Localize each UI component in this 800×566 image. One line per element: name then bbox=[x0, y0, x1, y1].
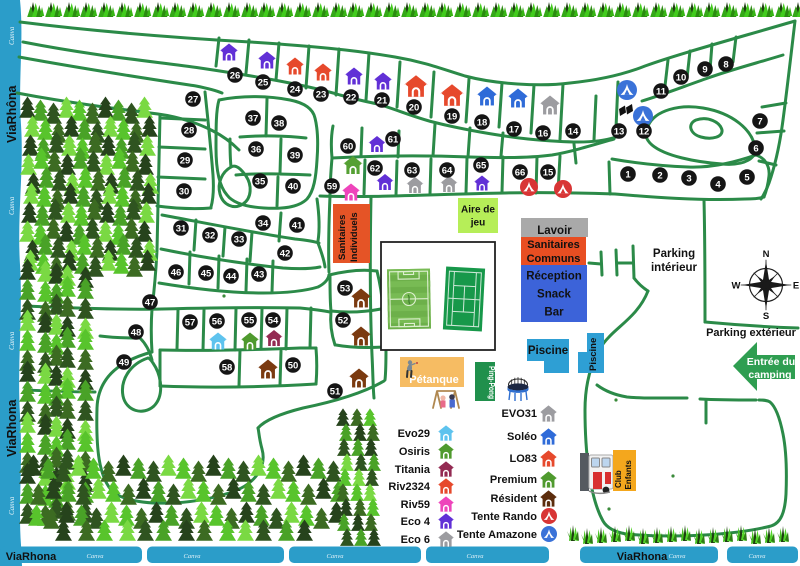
svg-text:52: 52 bbox=[338, 315, 349, 326]
svg-text:S: S bbox=[763, 311, 769, 322]
svg-text:14: 14 bbox=[568, 126, 579, 137]
svg-text:Canva: Canva bbox=[8, 496, 16, 515]
svg-text:7: 7 bbox=[757, 116, 762, 127]
svg-text:48: 48 bbox=[131, 327, 142, 338]
svg-text:2: 2 bbox=[657, 170, 662, 181]
svg-text:Canva: Canva bbox=[8, 26, 16, 45]
svg-text:43: 43 bbox=[254, 269, 265, 280]
svg-text:22: 22 bbox=[346, 92, 357, 103]
svg-text:Aire de: Aire de bbox=[461, 204, 495, 215]
svg-text:12: 12 bbox=[639, 126, 650, 137]
svg-text:Canva: Canva bbox=[8, 331, 16, 350]
svg-text:EVO31: EVO31 bbox=[502, 408, 537, 420]
svg-text:ViaRhona: ViaRhona bbox=[617, 551, 668, 563]
svg-text:3: 3 bbox=[686, 173, 691, 184]
svg-text:65: 65 bbox=[476, 160, 487, 171]
svg-text:Parking: Parking bbox=[653, 248, 695, 260]
svg-text:Tente Amazone: Tente Amazone bbox=[457, 529, 537, 541]
svg-text:E: E bbox=[793, 281, 799, 292]
svg-text:intérieur: intérieur bbox=[651, 262, 698, 274]
svg-text:Bar: Bar bbox=[544, 307, 564, 319]
svg-text:39: 39 bbox=[290, 150, 301, 161]
svg-text:Titania: Titania bbox=[395, 464, 431, 476]
svg-text:54: 54 bbox=[268, 315, 279, 326]
svg-text:35: 35 bbox=[255, 176, 266, 187]
svg-text:38: 38 bbox=[274, 118, 285, 129]
svg-text:LO83: LO83 bbox=[509, 453, 537, 465]
svg-text:57: 57 bbox=[185, 317, 196, 328]
svg-text:20: 20 bbox=[409, 102, 420, 113]
svg-text:Ping-Pong: Ping-Pong bbox=[487, 366, 496, 399]
svg-text:21: 21 bbox=[377, 95, 388, 106]
svg-text:6: 6 bbox=[753, 143, 758, 154]
svg-text:10: 10 bbox=[676, 72, 687, 83]
svg-text:63: 63 bbox=[407, 165, 418, 176]
svg-text:19: 19 bbox=[447, 111, 458, 122]
svg-text:Osiris: Osiris bbox=[399, 446, 430, 458]
svg-text:56: 56 bbox=[212, 316, 223, 327]
svg-text:55: 55 bbox=[244, 315, 255, 326]
svg-text:Soléo: Soléo bbox=[507, 431, 537, 443]
svg-text:23: 23 bbox=[316, 89, 327, 100]
svg-text:Club: Club bbox=[614, 470, 623, 488]
svg-text:40: 40 bbox=[288, 181, 299, 192]
svg-text:Tente Rando: Tente Rando bbox=[471, 511, 537, 523]
svg-text:Piscine: Piscine bbox=[588, 338, 599, 371]
svg-text:Canva: Canva bbox=[669, 553, 686, 560]
svg-text:Canva: Canva bbox=[184, 553, 201, 560]
svg-text:62: 62 bbox=[370, 163, 381, 174]
svg-text:4: 4 bbox=[715, 179, 721, 190]
svg-text:44: 44 bbox=[226, 271, 237, 282]
svg-text:29: 29 bbox=[180, 155, 191, 166]
svg-text:50: 50 bbox=[288, 360, 299, 371]
svg-text:1: 1 bbox=[625, 169, 631, 180]
svg-text:N: N bbox=[763, 249, 770, 260]
svg-text:Réception: Réception bbox=[526, 271, 582, 283]
svg-text:33: 33 bbox=[234, 234, 245, 245]
svg-text:24: 24 bbox=[290, 84, 301, 95]
svg-text:42: 42 bbox=[280, 248, 291, 259]
svg-text:Sanitaires: Sanitaires bbox=[527, 239, 580, 251]
svg-text:Canva: Canva bbox=[327, 553, 344, 560]
svg-text:Parking extérieur: Parking extérieur bbox=[706, 327, 797, 339]
svg-text:59: 59 bbox=[327, 181, 338, 192]
svg-text:27: 27 bbox=[188, 94, 199, 105]
svg-text:11: 11 bbox=[656, 86, 667, 97]
svg-text:Canva: Canva bbox=[8, 196, 16, 215]
svg-text:ViaRhona: ViaRhona bbox=[5, 399, 19, 457]
svg-text:Sanitaires: Sanitaires bbox=[337, 215, 348, 260]
svg-text:61: 61 bbox=[388, 134, 399, 145]
svg-text:46: 46 bbox=[171, 267, 182, 278]
svg-text:41: 41 bbox=[292, 220, 303, 231]
svg-text:16: 16 bbox=[538, 128, 549, 139]
svg-text:Canva: Canva bbox=[87, 553, 104, 560]
svg-text:17: 17 bbox=[509, 124, 520, 135]
svg-text:30: 30 bbox=[179, 186, 190, 197]
svg-text:Résident: Résident bbox=[491, 493, 538, 505]
svg-text:49: 49 bbox=[119, 357, 130, 368]
svg-text:Individuels: Individuels bbox=[349, 212, 360, 262]
svg-text:Canva: Canva bbox=[467, 553, 484, 560]
svg-text:60: 60 bbox=[343, 141, 354, 152]
svg-text:36: 36 bbox=[251, 144, 262, 155]
svg-text:5: 5 bbox=[744, 172, 750, 183]
svg-text:Eco 4: Eco 4 bbox=[401, 516, 431, 528]
svg-text:32: 32 bbox=[205, 230, 216, 241]
svg-text:47: 47 bbox=[145, 297, 156, 308]
svg-text:37: 37 bbox=[248, 113, 259, 124]
svg-text:Evo29: Evo29 bbox=[398, 428, 430, 440]
svg-text:Lavoir: Lavoir bbox=[537, 225, 572, 237]
svg-text:31: 31 bbox=[176, 223, 187, 234]
svg-text:ViaRhôna: ViaRhôna bbox=[5, 85, 19, 143]
svg-text:ViaRhona: ViaRhona bbox=[6, 551, 57, 563]
svg-text:Snack: Snack bbox=[537, 289, 571, 301]
svg-text:Entrée du: Entrée du bbox=[747, 356, 795, 368]
svg-text:8: 8 bbox=[723, 59, 728, 70]
svg-text:Riv2324: Riv2324 bbox=[388, 481, 430, 493]
svg-text:45: 45 bbox=[201, 268, 212, 279]
svg-text:W: W bbox=[732, 281, 741, 292]
svg-text:26: 26 bbox=[230, 70, 241, 81]
svg-text:53: 53 bbox=[340, 283, 351, 294]
svg-text:Riv59: Riv59 bbox=[401, 499, 430, 511]
svg-text:jeu: jeu bbox=[470, 218, 485, 229]
svg-text:Eco 6: Eco 6 bbox=[401, 534, 430, 546]
svg-text:camping: camping bbox=[748, 369, 791, 381]
svg-text:Piscine: Piscine bbox=[528, 345, 568, 357]
svg-text:Communs: Communs bbox=[527, 253, 581, 265]
svg-text:64: 64 bbox=[442, 165, 453, 176]
svg-text:51: 51 bbox=[330, 386, 341, 397]
svg-text:13: 13 bbox=[614, 126, 625, 137]
svg-text:28: 28 bbox=[184, 125, 195, 136]
svg-text:Premium: Premium bbox=[490, 474, 537, 486]
svg-text:Enfants: Enfants bbox=[624, 460, 633, 490]
svg-text:Pétanque: Pétanque bbox=[409, 374, 459, 386]
svg-text:15: 15 bbox=[543, 167, 554, 178]
svg-text:66: 66 bbox=[515, 167, 526, 178]
svg-text:9: 9 bbox=[702, 64, 707, 75]
svg-text:34: 34 bbox=[258, 218, 269, 229]
svg-text:Canva: Canva bbox=[749, 553, 766, 560]
svg-text:58: 58 bbox=[222, 362, 233, 373]
svg-text:18: 18 bbox=[477, 117, 488, 128]
svg-text:25: 25 bbox=[258, 77, 269, 88]
